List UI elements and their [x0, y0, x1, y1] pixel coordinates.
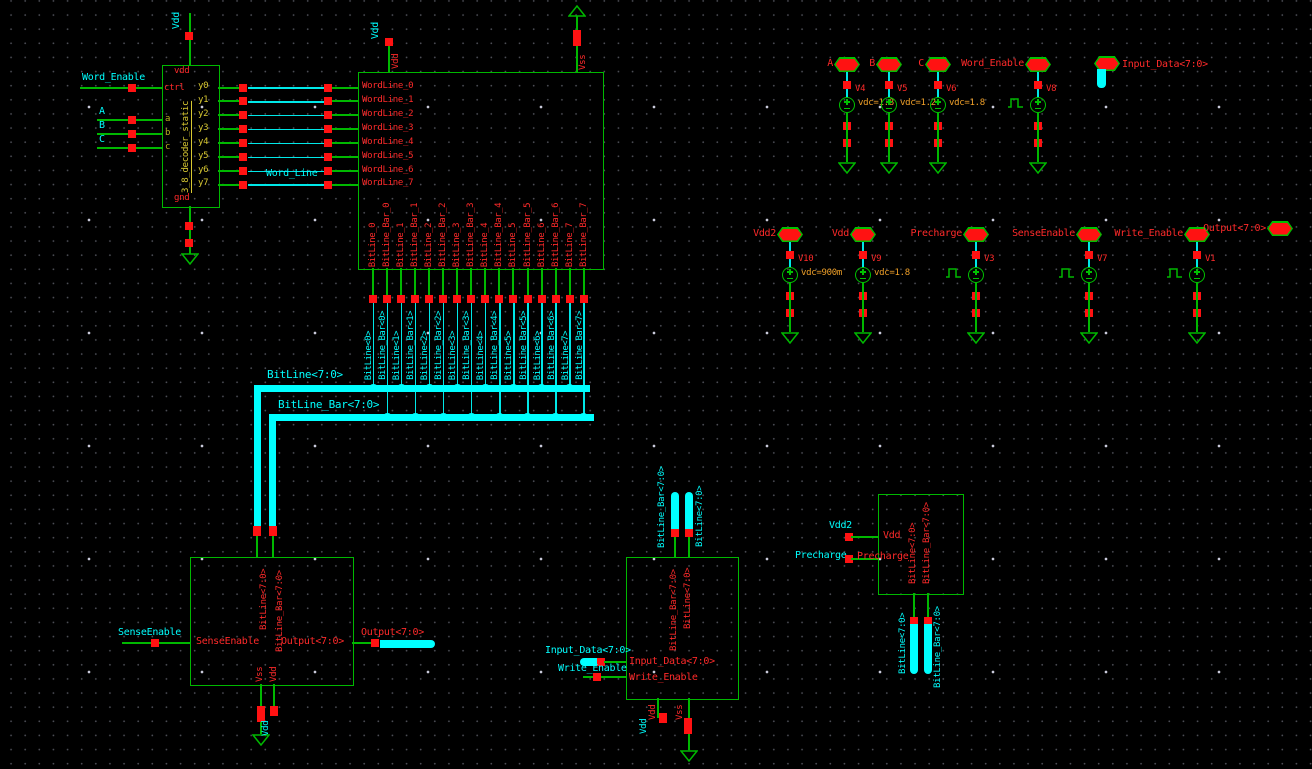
wire-pin-square	[593, 673, 601, 681]
bitline-pin-label-cell: BitLine_6	[535, 193, 549, 267]
wire-pin-square	[324, 111, 332, 119]
wire-pin-square	[495, 295, 503, 303]
pin-label-write-enable: Write_Enable	[629, 673, 698, 683]
wire-pin-square	[685, 529, 693, 537]
decoder-output-pin-label: y2	[198, 109, 208, 123]
wordline-wire[interactable]	[218, 95, 358, 109]
bitline-net-label: BitLine<7>	[561, 331, 571, 380]
bitline-wire[interactable]	[913, 593, 915, 619]
bitline-pin-label-cell: BitLine_Bar_1	[408, 193, 422, 267]
pin-hexagon[interactable]	[876, 57, 902, 72]
bitline-pin-label-cell: BitLine_Bar_5	[521, 193, 535, 267]
wire-pin-square	[324, 181, 332, 189]
source-name: V8	[1046, 85, 1056, 94]
bitline-bar-wire[interactable]	[927, 593, 929, 619]
wire-pin-square	[509, 295, 517, 303]
decoder-output-pin-label: y7	[198, 178, 208, 192]
bitline-pin-label: BitLine_2	[424, 223, 434, 267]
pin-label-bitline: BitLine<7:0>	[260, 560, 269, 630]
bitline-pin-label-cell: BitLine_3	[450, 193, 464, 267]
bitline-pin-label-cell: BitLine_Bar_6	[549, 193, 563, 267]
pin-label-vss: Vss	[256, 660, 265, 682]
source-name: V7	[1097, 255, 1107, 264]
wordline-wire[interactable]	[218, 151, 358, 165]
pin-hexagon[interactable]	[777, 227, 803, 242]
bitline-pin-label: BitLine_Bar_4	[494, 203, 504, 267]
net-label: Vdd	[832, 229, 849, 239]
net-label-word-line: Word_Line	[266, 169, 318, 179]
bitline-pin-label: BitLine_Bar_1	[410, 203, 420, 267]
source-param: vdc=900m	[801, 269, 842, 278]
wire-pin-square	[253, 526, 261, 536]
bitline-bus-stub[interactable]	[910, 624, 918, 674]
pin-hexagon[interactable]	[834, 57, 860, 72]
bitline-drop-wire[interactable]	[256, 536, 258, 557]
wire-pin-square	[185, 239, 193, 247]
gnd-symbol[interactable]	[1029, 162, 1047, 174]
bitline-bar-bus-stub[interactable]	[924, 624, 932, 674]
write-enable-wire[interactable]	[583, 676, 626, 678]
pin-label-ctrl: ctrl	[164, 84, 184, 93]
gnd-symbol[interactable]	[838, 162, 856, 174]
gnd-symbol[interactable]	[680, 750, 698, 762]
decoder-output-pin-label: y5	[198, 151, 208, 165]
gnd-symbol[interactable]	[181, 253, 199, 265]
decoder-output-pin-label: y1	[198, 95, 208, 109]
bitline-net-label: BitLine_Bar<3>	[462, 311, 472, 380]
bitline-bar-wire[interactable]	[674, 537, 676, 557]
wordline-pin-label: WordLine_2	[362, 109, 413, 123]
wire-pin-square	[239, 84, 247, 92]
wire-pin-square	[128, 144, 136, 152]
gnd-symbol[interactable]	[967, 332, 985, 344]
wire-pin-square	[239, 125, 247, 133]
wire-pin-square	[786, 251, 794, 259]
wire-pin-square	[239, 97, 247, 105]
pin-hexagon[interactable]	[1025, 57, 1051, 72]
bitline-pin-label-cell: BitLine_Bar_3	[464, 193, 478, 267]
bitline-net-label: BitLine_Bar<6>	[547, 311, 557, 380]
pin-hexagon[interactable]	[1076, 227, 1102, 242]
gnd-symbol[interactable]	[1080, 332, 1098, 344]
vdc-source-symbol[interactable]	[855, 267, 871, 283]
source-param: vdc=1.8	[874, 269, 910, 278]
pin-label-vdd: Vdd	[649, 700, 658, 720]
bitline-bus-stub[interactable]	[685, 492, 693, 530]
bitline-pin-label-cell: BitLine_5	[506, 193, 520, 267]
bitline-pin-label: BitLine_Bar_6	[551, 203, 561, 267]
pin-hexagon[interactable]	[1267, 221, 1293, 236]
net-label-c: C	[99, 135, 105, 145]
wire-pin-square	[151, 639, 159, 647]
wire-pin-square	[185, 32, 193, 40]
wire-pin-square	[439, 295, 447, 303]
source-name: V10	[798, 255, 813, 264]
pulse-waveform-icon	[1007, 96, 1025, 110]
net-label: Word_Enable	[961, 59, 1024, 69]
decoder-output-pin-label: y3	[198, 123, 208, 137]
net-label-vdd: Vdd	[262, 712, 271, 736]
vdc-source-symbol[interactable]	[782, 267, 798, 283]
bus-bitline[interactable]	[254, 385, 590, 392]
bitline-pin-label: BitLine_Bar_7	[579, 203, 589, 267]
pin-hexagon[interactable]	[925, 57, 951, 72]
array-bitline-pin-labels: BitLine_0BitLine_Bar_0BitLine_1BitLine_B…	[366, 193, 591, 267]
net-label-precharge: Precharge	[795, 551, 847, 561]
wire-pin-square	[239, 167, 247, 175]
net-label-vdd: Vdd	[640, 706, 649, 734]
pin-label-vdd: vdd	[174, 67, 189, 76]
wire-pin-square	[885, 81, 893, 89]
wire-pin-square	[269, 526, 277, 536]
wordline-pin-label: WordLine_1	[362, 95, 413, 109]
bus-bitline-vertical[interactable]	[254, 385, 261, 532]
bitline-pin-label: BitLine_Bar_0	[382, 203, 392, 267]
pin-label-sense-enable: SenseEnable	[196, 637, 259, 647]
wire-pin-square	[128, 130, 136, 138]
net-label: C	[918, 59, 924, 69]
wordline-pin-label: WordLine_6	[362, 165, 413, 179]
net-label-vdd: Vdd	[172, 12, 182, 29]
wire-pin-square	[859, 251, 867, 259]
bitline-pin-label-cell: BitLine_Bar_0	[380, 193, 394, 267]
wordline-wire[interactable]	[218, 137, 358, 151]
bitline-pin-label: BitLine_Bar_5	[523, 203, 533, 267]
bitline-wires[interactable]: BitLine<0> BitLine_Bar<0> BitLine<1> Bit…	[366, 268, 591, 428]
bitline-net-label: BitLine<6>	[533, 331, 543, 380]
bus-bitline-bar[interactable]	[269, 414, 594, 421]
vdc-source-symbol[interactable]	[930, 97, 946, 113]
source-name: V1	[1205, 255, 1215, 264]
bitline-pin-label: BitLine_6	[537, 223, 547, 267]
bitline-net-label: BitLine_Bar<2>	[434, 311, 444, 380]
bitline-net-label: BitLine_Bar<5>	[519, 311, 529, 380]
wordline-pin-label: WordLine_4	[362, 137, 413, 151]
bitline-pin-label: BitLine_1	[396, 223, 406, 267]
wire-pin-square	[659, 713, 667, 723]
output-bus-stub[interactable]	[380, 640, 435, 648]
wire-pin-square	[128, 84, 136, 92]
wire-pin-square	[1034, 81, 1042, 89]
wire-pin-square	[324, 125, 332, 133]
wire-pin-square	[411, 295, 419, 303]
bitline-pin-label-cell: BitLine_0	[366, 193, 380, 267]
wire-pin-square	[128, 116, 136, 124]
wire-pin-square	[573, 30, 581, 46]
source-name: V4	[855, 85, 865, 94]
pin-hexagon[interactable]	[963, 227, 989, 242]
wire-pin-square	[371, 639, 379, 647]
net-label-b: B	[99, 121, 105, 131]
net-label: Precharge	[911, 229, 963, 239]
bus-label-bitline-bar: BitLine_Bar<7:0>	[278, 399, 379, 410]
gnd-symbol[interactable]	[854, 332, 872, 344]
net-label: B	[869, 59, 875, 69]
wire-pin-square	[324, 153, 332, 161]
wire-pin-square	[385, 38, 393, 46]
pulse-source-symbol[interactable]	[1030, 97, 1046, 113]
net-label-bitline-bar: BitLine_Bar<7:0>	[658, 468, 667, 548]
decoder-output-pin-label: y0	[198, 81, 208, 95]
wire-pin-square	[843, 81, 851, 89]
wire-pin-square	[1085, 251, 1093, 259]
decoder-output-pin-labels: y0y1y2y3y4y5y6y7	[198, 81, 208, 192]
net-label-output: Output<7:0>	[361, 628, 424, 638]
wire-pin-square	[1193, 251, 1201, 259]
pin-label-bitline: BitLine<7:0>	[684, 563, 693, 629]
net-label-vdd: Vdd	[371, 22, 381, 39]
wordline-pin-label: WordLine_5	[362, 151, 413, 165]
wire-pin-square	[453, 295, 461, 303]
pin-label-c: c	[165, 143, 170, 152]
bitline-wire[interactable]: BitLine_Bar<7>	[577, 268, 591, 428]
net-label: Write_Enable	[1114, 229, 1183, 239]
bitline-pin-label: BitLine_7	[565, 223, 575, 267]
pin-label-input-data: Input_Data<7:0>	[629, 657, 715, 667]
net-label-input-data: Input_Data<7:0>	[545, 646, 631, 656]
bitline-bar-bus-stub[interactable]	[671, 492, 679, 530]
pulse-waveform-icon	[945, 266, 963, 280]
wordline-wire[interactable]	[218, 123, 358, 137]
schematic-canvas[interactable]: Vdd Word_Enable A B C vdd ctrl a b c 3_8…	[0, 0, 1312, 769]
wire-pin-square	[369, 295, 377, 303]
wire-pin-square	[239, 139, 247, 147]
bitline-pin-label: BitLine_4	[480, 223, 490, 267]
bitline-net-label: BitLine<3>	[448, 331, 458, 380]
source-name: V6	[946, 85, 956, 94]
pin-label-vdd: Vdd	[270, 660, 279, 682]
bitline-net-label: BitLine<2>	[420, 331, 430, 380]
gnd-symbol[interactable]	[929, 162, 947, 174]
bitline-pin-label: BitLine_0	[368, 223, 378, 267]
wire-pin-square	[972, 251, 980, 259]
wire-pin-square	[324, 139, 332, 147]
pulse-source-symbol[interactable]	[968, 267, 984, 283]
source-name: V3	[984, 255, 994, 264]
vdc-source-symbol[interactable]	[881, 97, 897, 113]
wire-pin-square	[397, 295, 405, 303]
wordline-pin-label: WordLine_7	[362, 178, 413, 192]
bitline-pin-label-cell: BitLine_Bar_7	[577, 193, 591, 267]
pin-label-b: b	[165, 129, 170, 138]
bitline-wire[interactable]	[688, 537, 690, 557]
gnd-symbol[interactable]	[1188, 332, 1206, 344]
wordline-wire[interactable]	[218, 109, 358, 123]
net-label-word-enable: Word_Enable	[82, 73, 145, 83]
wordline-pin-label: WordLine_0	[362, 81, 413, 95]
bitline-pin-label-cell: BitLine_1	[394, 193, 408, 267]
pin-label-gnd: gnd	[174, 194, 189, 203]
input-data-bus-stub[interactable]	[1097, 69, 1106, 88]
wire-pin-square	[580, 295, 588, 303]
pin-label-bitline: BitLine<7:0>	[909, 520, 918, 584]
bus-label-bitline: BitLine<7:0>	[267, 369, 343, 380]
pin-label-precharge: Precharge	[857, 552, 909, 562]
wire-pin-square	[324, 97, 332, 105]
net-label-bitline: BitLine<7:0>	[696, 477, 705, 547]
pin-hexagon[interactable]	[850, 227, 876, 242]
gnd-symbol[interactable]	[781, 332, 799, 344]
bitline-net-label: BitLine_Bar<4>	[490, 311, 500, 380]
wordline-wire[interactable]	[218, 81, 358, 95]
wire-pin-square	[684, 718, 692, 734]
pulse-source-symbol[interactable]	[1081, 267, 1097, 283]
pin-label-bitline-bar: BitLine_Bar<7:0>	[670, 563, 679, 651]
bitline-bar-drop-wire[interactable]	[272, 536, 274, 557]
vdd-wire[interactable]	[851, 536, 878, 538]
bitline-pin-label-cell: BitLine_Bar_4	[492, 193, 506, 267]
bitline-pin-label: BitLine_3	[452, 223, 462, 267]
bitline-net-label: BitLine_Bar<0>	[378, 311, 388, 380]
wire-pin-square	[934, 81, 942, 89]
pin-label-bitline-bar: BitLine_Bar<7:0>	[923, 497, 932, 584]
pin-label-vdd: Vdd	[883, 531, 900, 541]
wire-pin-square	[467, 295, 475, 303]
pulse-waveform-icon	[1058, 266, 1076, 280]
pulse-waveform-icon	[1166, 266, 1184, 280]
wire-pin-square	[324, 167, 332, 175]
decoder-instance-label: 3_8_decoder_static	[182, 93, 191, 193]
net-label: Vdd2	[753, 229, 776, 239]
wire-pin-square	[324, 84, 332, 92]
bitline-pin-label-cell: BitLine_4	[478, 193, 492, 267]
pulse-source-symbol[interactable]	[1189, 267, 1205, 283]
bitline-net-label: BitLine<0>	[364, 331, 374, 380]
wire-pin-square	[239, 153, 247, 161]
wire-pin-square	[239, 181, 247, 189]
wire-pin-square	[383, 295, 391, 303]
pin-label-a: a	[165, 115, 170, 124]
net-label-a: A	[99, 107, 105, 117]
net-label: SenseEnable	[1012, 229, 1075, 239]
gnd-symbol[interactable]	[880, 162, 898, 174]
bitline-net-label: BitLine_Bar<1>	[406, 311, 416, 380]
word-enable-wire[interactable]	[80, 87, 162, 89]
vdc-source-symbol[interactable]	[839, 97, 855, 113]
source-name: V5	[897, 85, 907, 94]
bitline-pin-label-cell: BitLine_7	[563, 193, 577, 267]
bitline-net-label: BitLine<4>	[476, 331, 486, 380]
pin-label-vss: Vss	[676, 700, 685, 720]
array-wordline-pin-labels: WordLine_0WordLine_1WordLine_2WordLine_3…	[362, 81, 413, 192]
bitline-pin-label: BitLine_5	[508, 223, 518, 267]
wire-pin-square	[239, 111, 247, 119]
bitline-pin-label: BitLine_Bar_3	[466, 203, 476, 267]
bitline-pin-label-cell: BitLine_2	[422, 193, 436, 267]
net-label-bitline-bar: BitLine_Bar<7:0>	[934, 596, 943, 688]
source-name: V9	[871, 255, 881, 264]
wire-pin-square	[481, 295, 489, 303]
decoder-output-pin-label: y4	[198, 137, 208, 151]
pin-label-vdd: Vdd	[392, 47, 401, 69]
bitline-net-label: BitLine<5>	[504, 331, 514, 380]
pin-label-vss: Vss	[579, 48, 588, 70]
decoder-output-pin-label: y6	[198, 165, 208, 179]
pin-label-output: Output<7:0>	[281, 637, 344, 647]
wordline-pin-label: WordLine_3	[362, 123, 413, 137]
net-label-sense-enable: SenseEnable	[118, 628, 181, 638]
output-wire[interactable]	[352, 642, 372, 644]
bitline-net-label: BitLine_Bar<7>	[575, 311, 585, 380]
net-label-bitline: BitLine<7:0>	[899, 612, 908, 674]
wordline-wire[interactable]	[218, 178, 358, 192]
bus-bitline-bar-vertical[interactable]	[269, 414, 276, 532]
pin-label-input-data: Input_Data<7:0>	[1122, 60, 1208, 70]
wire-pin-square	[425, 295, 433, 303]
wire-pin-square	[270, 706, 278, 716]
bitline-pin-label: BitLine_Bar_2	[438, 203, 448, 267]
bitline-net-label: BitLine<1>	[392, 331, 402, 380]
net-label-vdd2: Vdd2	[829, 521, 852, 531]
wire-pin-square	[538, 295, 546, 303]
net-label: A	[827, 59, 833, 69]
wire-pin-square	[566, 295, 574, 303]
wire-pin-square	[552, 295, 560, 303]
wire-pin-square	[671, 529, 679, 537]
wire-pin-square	[185, 222, 193, 230]
precharge-block[interactable]	[878, 494, 964, 595]
wire-pin-square	[524, 295, 532, 303]
pin-label-output: Output<7:0>	[1203, 224, 1266, 234]
source-param: vdc=1.8	[949, 99, 985, 108]
bitline-pin-label-cell: BitLine_Bar_2	[436, 193, 450, 267]
